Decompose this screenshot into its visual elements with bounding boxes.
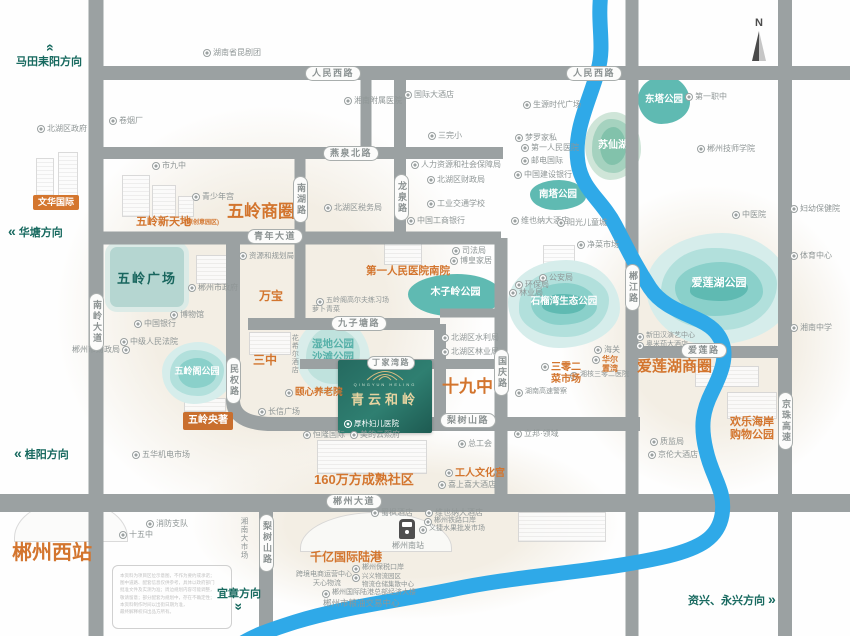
poi-text: 天心物流 bbox=[313, 580, 341, 588]
compass-north: N bbox=[752, 18, 766, 61]
poi-text: 国际大酒店 bbox=[414, 90, 454, 100]
poi-icon bbox=[521, 144, 529, 152]
poi-icon bbox=[458, 440, 466, 448]
poi-text: 三完小 bbox=[438, 131, 462, 141]
poi-text: 喜上喜大酒店 bbox=[448, 480, 496, 490]
poi-icon bbox=[732, 211, 740, 219]
road-label-pill: 丁家湾路 bbox=[367, 356, 415, 370]
poi-text: 资源和规划局 bbox=[249, 251, 294, 260]
poi-icon bbox=[521, 157, 529, 165]
poi-label: 三完小 bbox=[428, 131, 462, 141]
poi-text: 卷烟厂 bbox=[119, 116, 143, 126]
poi-label: 五岭阁高尔夫练习场 bbox=[316, 297, 389, 306]
poi-icon bbox=[636, 333, 644, 341]
poi-icon bbox=[427, 176, 435, 184]
direction-arrow-icon: « bbox=[14, 448, 22, 459]
poi-text: 消防支队 bbox=[156, 519, 188, 529]
disclaimer-box: 本资料为项目区位示意图，不作为要约或承诺； 图中道路、配套信息仅供参考，具体以政… bbox=[112, 565, 232, 629]
poi-label: 中国银行 bbox=[134, 319, 176, 329]
landmark-label: 华尔 置湾 bbox=[592, 355, 618, 373]
landmark-label: 160万方成熟社区 bbox=[314, 473, 414, 488]
landmark-text: 五岭商圈 bbox=[227, 202, 295, 222]
poi-text: 兴义物流园区 物流仓储集散中心 bbox=[362, 573, 414, 589]
poi-label: 邮电国际 bbox=[521, 156, 563, 166]
landmark-text: 千亿国际陆港 bbox=[310, 551, 382, 565]
road-label-pill: 爱莲路 bbox=[681, 343, 727, 358]
poi-label: 湖南省昆剧团 bbox=[203, 48, 261, 58]
poi-label: 花希尔酒店 bbox=[290, 334, 298, 374]
poi-text: 郴州技师学院 bbox=[707, 144, 755, 154]
poi-label: 新田汉演艺中心 bbox=[636, 332, 695, 341]
compass-needle-icon bbox=[752, 31, 766, 61]
poi-icon bbox=[303, 431, 311, 439]
poi-icon bbox=[441, 334, 449, 342]
poi-label: 跨境电商运营中心 bbox=[296, 571, 352, 579]
poi-text: 郴州市政府 bbox=[198, 283, 238, 293]
poi-label: 兴义物流园区 物流仓储集散中心 bbox=[352, 573, 414, 589]
compass-needle-light bbox=[759, 31, 766, 61]
landmark-label: 工人文化宫 bbox=[445, 468, 505, 480]
poi-label: 林业局 bbox=[509, 288, 543, 298]
landmark-label: 郴州西站 bbox=[12, 542, 92, 565]
poi-icon bbox=[636, 342, 644, 350]
poi-text: 湖南高速警察 bbox=[525, 388, 567, 396]
poi-label: 国际大酒店 bbox=[404, 90, 454, 100]
poi-text: 中国银行 bbox=[144, 319, 176, 329]
poi-label: 梦罗家私 bbox=[515, 133, 557, 143]
poi-text: 阳光儿童城 bbox=[567, 218, 607, 228]
poi-text: 人力资源和社会保障局 bbox=[421, 160, 501, 170]
poi-icon bbox=[790, 252, 798, 260]
poi-label: 卷烟厂 bbox=[109, 116, 143, 126]
poi-label: 北湖区林业局 bbox=[441, 347, 499, 357]
poi-icon bbox=[425, 509, 433, 517]
direction-text: 华塘方向 bbox=[19, 224, 63, 240]
direction-arrow-icon: » bbox=[233, 603, 244, 611]
road-label-pill: 南岭大道 bbox=[89, 293, 104, 351]
project-hospital-label: 厚朴妇儿医院 bbox=[344, 418, 399, 429]
poi-icon bbox=[258, 408, 266, 416]
train-window bbox=[402, 522, 412, 527]
poi-icon bbox=[344, 420, 352, 428]
poi-text: 长信广场 bbox=[268, 407, 300, 417]
poi-icon bbox=[285, 389, 293, 397]
poi-label: 博物馆 bbox=[170, 310, 204, 320]
poi-icon bbox=[445, 469, 453, 477]
landmark-text: 欢乐海岸 购物公园 bbox=[730, 416, 774, 441]
poi-text: 净菜市场 bbox=[587, 240, 619, 250]
poi-text: 第一职中 bbox=[695, 92, 727, 102]
poi-text: 花希尔酒店 bbox=[290, 334, 298, 374]
poi-label: 美的云熙府 bbox=[350, 430, 400, 440]
poi-icon bbox=[427, 200, 435, 208]
poi-label: 阳光儿童城 bbox=[557, 218, 607, 228]
poi-icon bbox=[594, 346, 602, 354]
landmark-text: (原创意园区) bbox=[185, 220, 219, 227]
landmark-label: 十九中 bbox=[442, 377, 493, 397]
landmark-text: 三中 bbox=[253, 354, 277, 368]
poi-label: 湘南附属医院 bbox=[344, 96, 402, 106]
landmark-label: 三零二 菜市场 bbox=[541, 362, 581, 385]
poi-text: 体育中心 bbox=[800, 251, 832, 261]
poi-icon bbox=[192, 193, 200, 201]
poi-icon bbox=[203, 49, 211, 57]
poi-icon bbox=[452, 247, 460, 255]
poi-text: 林业局 bbox=[519, 288, 543, 298]
poi-text: 市九中 bbox=[162, 161, 186, 171]
landmark-text: 三零二 菜市场 bbox=[551, 362, 581, 385]
poi-label: 总工会 bbox=[458, 439, 492, 449]
poi-label: 北湖区水利局 bbox=[441, 333, 499, 343]
poi-icon bbox=[322, 590, 330, 598]
poi-icon bbox=[109, 117, 117, 125]
poi-icon bbox=[511, 217, 519, 225]
poi-icon bbox=[790, 205, 798, 213]
project-card-qingyun-heling: QINGYUN HELING 青云和岭 厚朴妇儿医院 bbox=[338, 360, 432, 433]
poi-icon bbox=[239, 252, 247, 260]
poi-text: 郴州南站 bbox=[392, 541, 424, 551]
direction-arrow-icon: « bbox=[8, 226, 16, 237]
poi-text: 公安局 bbox=[549, 273, 573, 283]
poi-label: 消防支队 bbox=[146, 519, 188, 529]
poi-icon bbox=[541, 363, 549, 371]
poi-icon bbox=[132, 451, 140, 459]
landmark-text: 工人文化宫 bbox=[455, 468, 505, 480]
landmark-label: 五岭商圈 bbox=[227, 202, 295, 222]
poi-icon bbox=[557, 219, 565, 227]
landmark-label: (原创意园区) bbox=[185, 220, 219, 227]
poi-text: 五华机电市场 bbox=[142, 450, 190, 460]
poi-text: 第一人民医院 bbox=[531, 143, 579, 153]
poi-text: 湘南附属医院 bbox=[354, 96, 402, 106]
direction-label: «华塘方向 bbox=[8, 224, 63, 240]
poi-text: 恒隆国际 bbox=[313, 430, 345, 440]
poi-text: 工业交通学校 bbox=[437, 199, 485, 209]
poi-label: 义捷水果批发市场 bbox=[419, 525, 485, 534]
poi-icon bbox=[324, 204, 332, 212]
poi-label: 五华机电市场 bbox=[132, 450, 190, 460]
road-label-pill: 龙泉路 bbox=[394, 174, 409, 221]
poi-icon bbox=[122, 346, 130, 354]
direction-label: »宜章方向 bbox=[217, 585, 261, 612]
poi-icon bbox=[428, 132, 436, 140]
poi-label: 人力资源和社会保障局 bbox=[411, 160, 501, 170]
poi-icon bbox=[316, 298, 324, 306]
poi-label: 生源时代广场 bbox=[523, 100, 581, 110]
poi-icon bbox=[514, 430, 522, 438]
poi-text: 立邦·领域 bbox=[524, 429, 559, 439]
poi-icon bbox=[515, 389, 523, 397]
poi-text: 青少年宫 bbox=[202, 192, 234, 202]
poi-text: 邮电国际 bbox=[531, 156, 563, 166]
poi-label: 北湖区财政局 bbox=[427, 175, 485, 185]
badge-文华国际: 文华国际 bbox=[33, 195, 79, 210]
poi-label: 湘南大市场 bbox=[240, 517, 249, 560]
train-station-icon bbox=[399, 519, 415, 539]
poi-text: 中医院 bbox=[742, 210, 766, 220]
poi-text: 北湖区林业局 bbox=[451, 347, 499, 357]
road-label-pill: 南湖路 bbox=[293, 176, 308, 223]
poi-label: 净菜市场 bbox=[577, 240, 619, 250]
poi-icon bbox=[685, 93, 693, 101]
poi-text: 梦罗家私 bbox=[525, 133, 557, 143]
poi-text: 跨境电商运营中心 bbox=[296, 571, 352, 579]
landmark-label: 三中 bbox=[253, 354, 277, 368]
landmark-label: 颐心养老院 bbox=[285, 388, 343, 399]
poi-label: 郴州市政府 bbox=[188, 283, 238, 293]
poi-icon bbox=[523, 101, 531, 109]
poi-text: 中级人民法院 bbox=[130, 337, 178, 347]
poi-icon bbox=[697, 145, 705, 153]
poi-text: 新田汉演艺中心 bbox=[646, 332, 695, 340]
poi-icon bbox=[411, 161, 419, 169]
poi-label: 第一人民医院 bbox=[521, 143, 579, 153]
poi-label: 萝卜青菜 bbox=[312, 306, 340, 314]
landmark-text: 颐心养老院 bbox=[295, 388, 343, 399]
landmark-label: 欢乐海岸 购物公园 bbox=[730, 416, 774, 441]
road-label-pill: 梨树山路 bbox=[259, 514, 274, 572]
direction-text: 马田耒阳方向 bbox=[16, 53, 82, 69]
poi-text: 博物馆 bbox=[180, 310, 204, 320]
direction-label: 资兴、永兴方向» bbox=[688, 592, 776, 608]
poi-label: 喜上喜大酒店 bbox=[438, 480, 496, 490]
poi-label: 湖南高速警察 bbox=[515, 388, 567, 397]
badge-五岭央著: 五岭央著 bbox=[183, 412, 233, 430]
road-label-pill: 青年大道 bbox=[247, 229, 303, 244]
poi-icon bbox=[170, 311, 178, 319]
poi-icon bbox=[37, 125, 45, 133]
location-map: 五岭广场 QINGYUN HELING 青云和岭 厚朴妇儿医院 N 本资料为项目… bbox=[0, 0, 850, 636]
poi-text: 萝卜青菜 bbox=[312, 306, 340, 314]
poi-icon bbox=[438, 481, 446, 489]
landmark-text: 郴州西站 bbox=[12, 542, 92, 565]
landmark-label: 千亿国际陆港 bbox=[310, 551, 382, 565]
poi-icon bbox=[146, 520, 154, 528]
poi-text: 总工会 bbox=[468, 439, 492, 449]
poi-icon bbox=[450, 257, 458, 265]
poi-label: 天心物流 bbox=[313, 580, 341, 588]
poi-icon bbox=[419, 526, 427, 534]
poi-label: 市九中 bbox=[152, 161, 186, 171]
direction-arrow-icon: » bbox=[768, 594, 776, 605]
poi-text: 郴州保税口岸 bbox=[362, 564, 404, 572]
road-label-pill: 郴州大道 bbox=[326, 494, 382, 509]
poi-text: 质监局 bbox=[660, 437, 684, 447]
landmark-label: 五岭新天地 bbox=[136, 216, 191, 229]
poi-icon bbox=[352, 565, 360, 573]
poi-text: 生源时代广场 bbox=[533, 100, 581, 110]
landmark-text: 华尔 置湾 bbox=[602, 355, 618, 373]
poi-icon bbox=[514, 171, 522, 179]
poi-text: 北湖区水利局 bbox=[451, 333, 499, 343]
poi-label: 立邦·领域 bbox=[514, 429, 559, 439]
poi-icon bbox=[350, 431, 358, 439]
poi-icon bbox=[577, 241, 585, 249]
poi-text: 京伦大酒店 bbox=[658, 450, 698, 460]
poi-icon bbox=[404, 91, 412, 99]
direction-text: 桂阳方向 bbox=[25, 446, 69, 462]
poi-label: 中国建设银行 bbox=[514, 170, 572, 180]
poi-text: 湖南省昆剧团 bbox=[213, 48, 261, 58]
poi-label: 中国工商银行 bbox=[407, 216, 465, 226]
poi-icon bbox=[352, 574, 360, 582]
landmark-text: 万宝 bbox=[259, 290, 283, 304]
poi-label: 蜀枫酒店 bbox=[371, 508, 413, 518]
poi-label: 青少年宫 bbox=[192, 192, 234, 202]
poi-label: 资源和规划局 bbox=[239, 251, 294, 260]
poi-label: 中医院 bbox=[732, 210, 766, 220]
poi-text: 妇幼保健院 bbox=[800, 204, 840, 214]
road-label-pill: 民权路 bbox=[226, 357, 241, 404]
poi-icon bbox=[188, 284, 196, 292]
poi-label: 郴州南站 bbox=[392, 541, 424, 551]
direction-text: 资兴、永兴方向 bbox=[688, 592, 765, 608]
project-latin-name: QINGYUN HELING bbox=[338, 382, 432, 387]
poi-label: 郴州国际陆港总部经济大楼 bbox=[322, 589, 416, 598]
road-label-pill: 人民西路 bbox=[305, 66, 361, 81]
project-name: 青云和岭 bbox=[338, 389, 432, 408]
poi-icon bbox=[407, 217, 415, 225]
road-label-pill: 郴江路 bbox=[625, 264, 640, 311]
landmark-text: 五岭新天地 bbox=[136, 216, 191, 229]
poi-label: 郴州保税口岸 bbox=[352, 564, 404, 573]
poi-label: 第一职中 bbox=[685, 92, 727, 102]
poi-text: 郴州国际陆港总部经济大楼 bbox=[332, 589, 416, 597]
poi-icon bbox=[119, 531, 127, 539]
road-label-pill: 燕泉北路 bbox=[323, 146, 379, 161]
landmark-text: 第一人民医院南院 bbox=[366, 265, 450, 277]
poi-label: 质监局 bbox=[650, 437, 684, 447]
poi-text: 北湖区税务局 bbox=[334, 203, 382, 213]
poi-icon bbox=[371, 509, 379, 517]
poi-label: 体育中心 bbox=[790, 251, 832, 261]
poi-text: 蜀枫酒店 bbox=[381, 508, 413, 518]
direction-arrow-icon: » bbox=[43, 44, 54, 52]
poi-text: 十五中 bbox=[129, 530, 153, 540]
poi-text: 美的云熙府 bbox=[360, 430, 400, 440]
poi-label: 海关 bbox=[594, 345, 620, 355]
poi-icon bbox=[509, 289, 517, 297]
poi-text: 五岭阁高尔夫练习场 bbox=[326, 297, 389, 305]
poi-text: 义捷水果批发市场 bbox=[429, 525, 485, 533]
direction-label: »马田耒阳方向 bbox=[16, 42, 82, 69]
poi-label: 十五中 bbox=[119, 530, 153, 540]
road-label-pill: 梨树山路 bbox=[440, 413, 496, 428]
poi-label: 妇幼保健院 bbox=[790, 204, 840, 214]
poi-icon bbox=[650, 438, 658, 446]
road-label-pill: 九子塘路 bbox=[331, 316, 387, 331]
poi-label: 长信广场 bbox=[258, 407, 300, 417]
poi-text: 湘南中学 bbox=[800, 323, 832, 333]
poi-icon bbox=[344, 97, 352, 105]
poi-text: 海关 bbox=[604, 345, 620, 355]
poi-text: 湘南大市场 bbox=[240, 517, 249, 560]
poi-icon bbox=[648, 451, 656, 459]
direction-label: «桂阳方向 bbox=[14, 446, 69, 462]
poi-icon bbox=[515, 134, 523, 142]
compass-needle-dark bbox=[752, 31, 759, 61]
poi-text: 中国建设银行 bbox=[524, 170, 572, 180]
poi-text: 司法局 bbox=[462, 246, 486, 256]
road-label-pill: 人民西路 bbox=[566, 66, 622, 81]
poi-icon bbox=[592, 356, 600, 364]
hospital-name: 厚朴妇儿医院 bbox=[354, 418, 399, 429]
poi-icon bbox=[152, 162, 160, 170]
poi-label: 恒隆国际 bbox=[303, 430, 345, 440]
poi-text: 北湖区财政局 bbox=[437, 175, 485, 185]
poi-text: 郴州市粮油交易中心 bbox=[323, 598, 400, 608]
poi-label: 博皇家居 bbox=[450, 256, 492, 266]
landmark-label: 爱莲湖商圈 bbox=[637, 358, 712, 375]
poi-text: 博皇家居 bbox=[460, 256, 492, 266]
landmark-label: 第一人民医院南院 bbox=[366, 265, 450, 277]
poi-icon bbox=[134, 320, 142, 328]
poi-label: 京伦大酒店 bbox=[648, 450, 698, 460]
poi-label: 郴州技师学院 bbox=[697, 144, 755, 154]
landmark-label: 万宝 bbox=[259, 290, 283, 304]
road-label-pill: 国庆路 bbox=[494, 349, 509, 396]
poi-label: 湘南中学 bbox=[790, 323, 832, 333]
landmark-text: 爱莲湖商圈 bbox=[637, 358, 712, 375]
poi-label: 司法局 bbox=[452, 246, 486, 256]
poi-text: 中国工商银行 bbox=[417, 216, 465, 226]
landmark-text: 十九中 bbox=[442, 377, 493, 397]
train-light bbox=[405, 530, 409, 534]
poi-icon bbox=[441, 348, 449, 356]
landmark-text: 160万方成熟社区 bbox=[314, 473, 414, 488]
poi-label: 郴州市粮油交易中心 bbox=[323, 598, 400, 608]
poi-icon bbox=[790, 324, 798, 332]
poi-label: 工业交通学校 bbox=[427, 199, 485, 209]
direction-text: 宜章方向 bbox=[217, 585, 261, 601]
poi-label: 北湖区政府 bbox=[37, 124, 87, 134]
poi-label: 北湖区税务局 bbox=[324, 203, 382, 213]
poi-text: 北湖区政府 bbox=[47, 124, 87, 134]
compass-label: N bbox=[755, 18, 763, 29]
road-label-pill: 京珠高速 bbox=[778, 392, 793, 450]
